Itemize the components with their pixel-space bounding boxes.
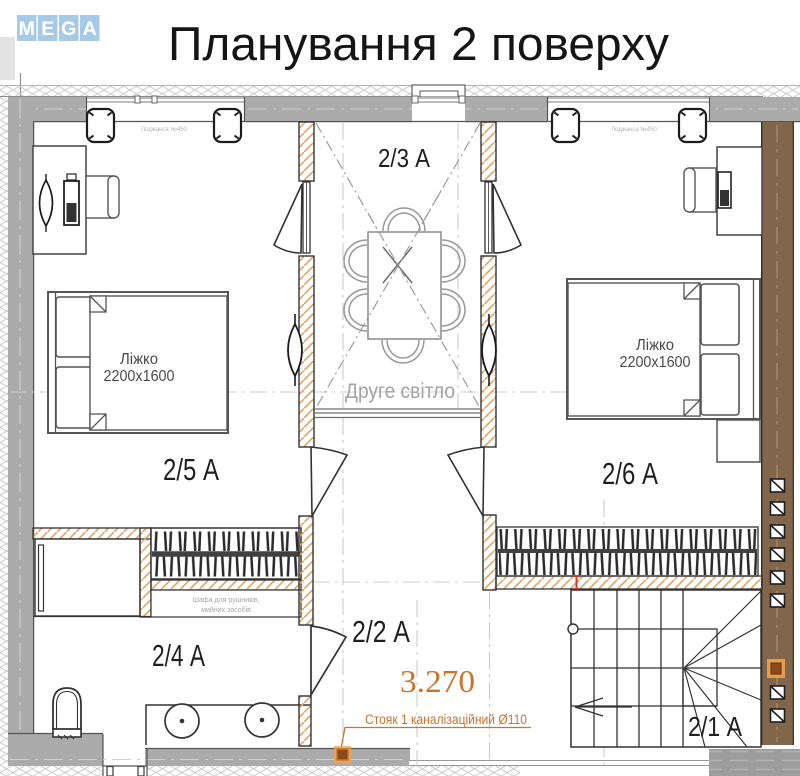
svg-text:2/2 А: 2/2 А bbox=[352, 614, 410, 649]
svg-text:G: G bbox=[61, 18, 76, 40]
svg-text:Стояк 1 каналізаційний Ø110: Стояк 1 каналізаційний Ø110 bbox=[365, 712, 527, 727]
svg-text:2200х1600: 2200х1600 bbox=[104, 368, 175, 385]
svg-text:Лоджанса №450: Лоджанса №450 bbox=[141, 126, 187, 133]
svg-text:2/3 А: 2/3 А bbox=[378, 143, 431, 173]
svg-text:3.270: 3.270 bbox=[400, 663, 475, 699]
svg-text:мийних засобів: мийних засобів bbox=[201, 606, 251, 614]
svg-text:M: M bbox=[19, 18, 35, 40]
svg-text:2/1 А: 2/1 А bbox=[688, 711, 742, 742]
svg-text:A: A bbox=[83, 18, 97, 40]
svg-text:Ліжко: Ліжко bbox=[636, 337, 674, 354]
svg-text:Друге світло: Друге світло bbox=[345, 380, 455, 403]
svg-text:2200х1600: 2200х1600 bbox=[620, 354, 691, 371]
svg-text:2/5 А: 2/5 А bbox=[163, 452, 219, 487]
svg-text:E: E bbox=[41, 18, 54, 40]
svg-text:Шафа для рушників,: Шафа для рушників, bbox=[193, 596, 260, 604]
svg-text:Планування 2 поверху: Планування 2 поверху bbox=[168, 17, 670, 70]
svg-text:Ліжко: Ліжко bbox=[120, 351, 158, 368]
svg-text:2/6 А: 2/6 А bbox=[602, 456, 658, 491]
svg-text:Лоджанса №450: Лоджанса №450 bbox=[611, 126, 657, 133]
svg-text:2/4 А: 2/4 А bbox=[152, 638, 205, 673]
